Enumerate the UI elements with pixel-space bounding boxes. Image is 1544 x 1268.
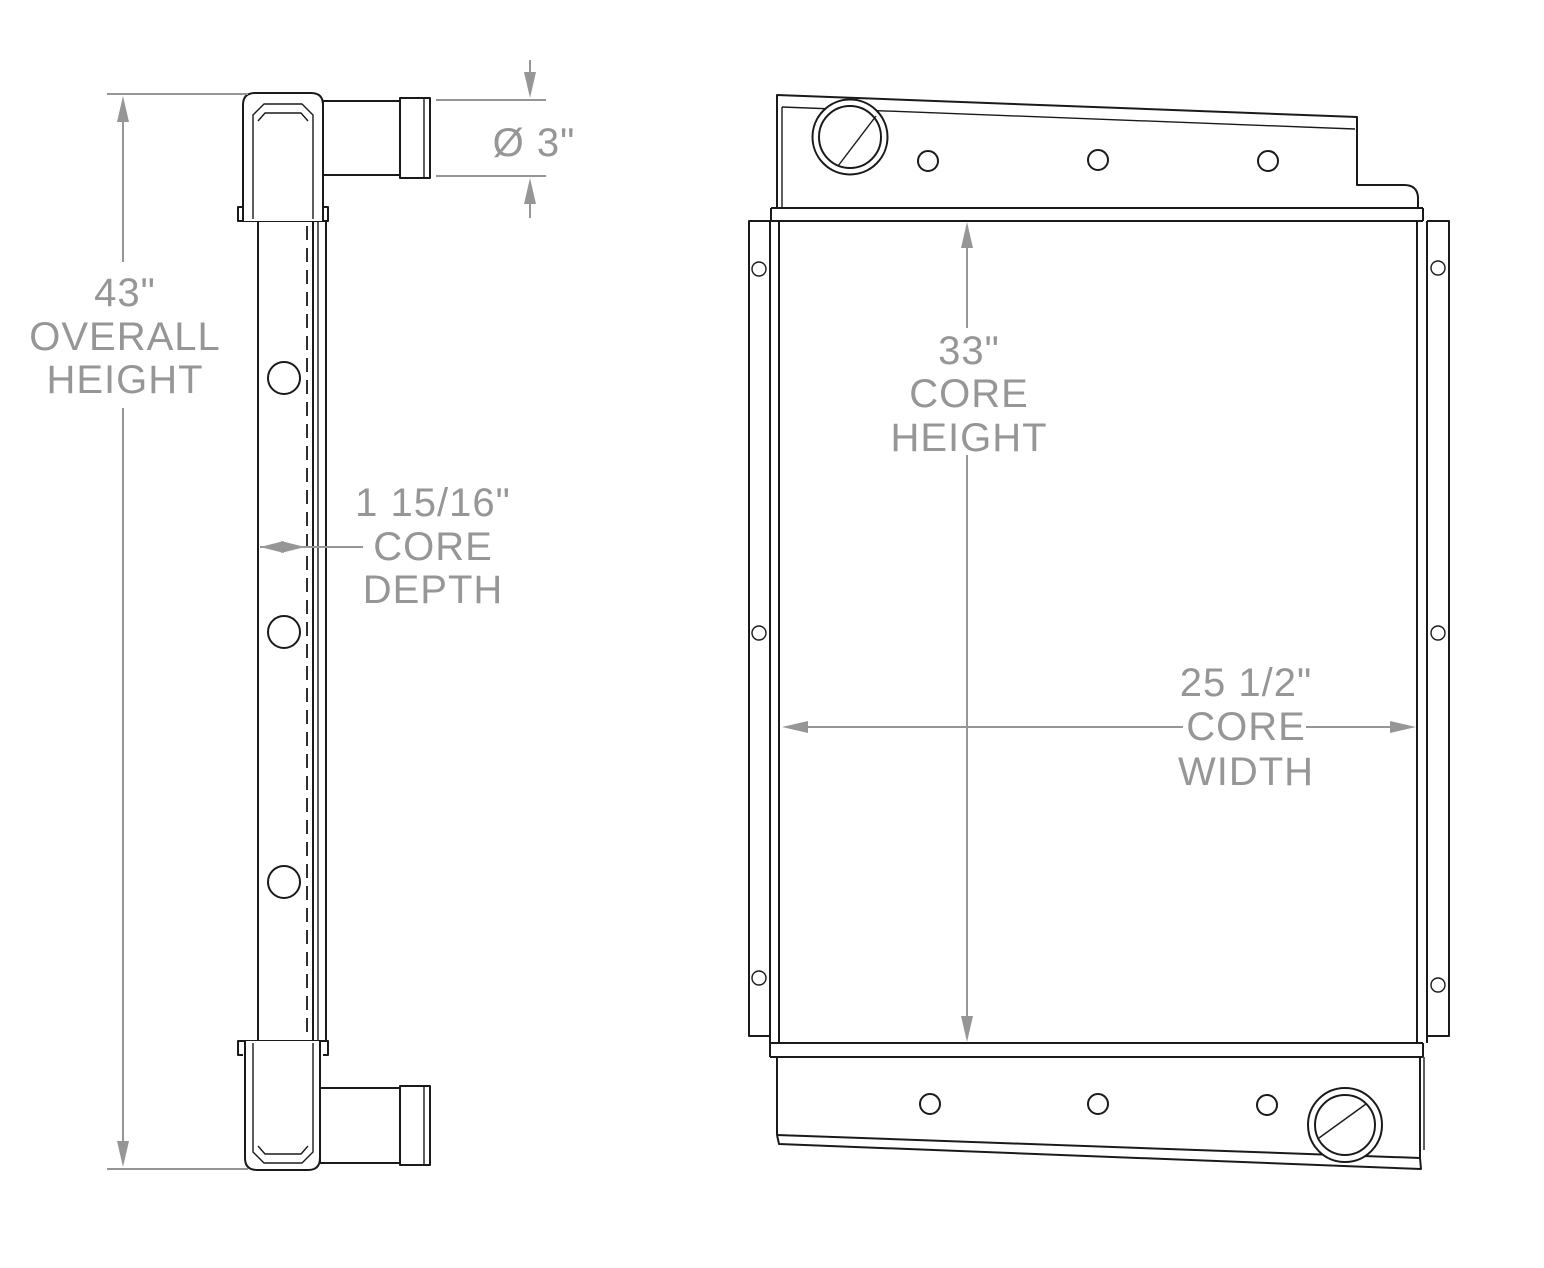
front-view (749, 95, 1449, 1169)
arrowhead-down (961, 1016, 973, 1042)
dimension-text: OVERALL (29, 315, 221, 359)
arrowhead-down (524, 72, 536, 98)
arrowhead-left (782, 721, 808, 733)
flange-bolt-hole (1431, 626, 1445, 640)
flange-bolt-hole (752, 262, 766, 276)
dimension-text: CORE (909, 372, 1029, 416)
dimension-text: 25 1/2" (1180, 661, 1312, 705)
tank-mounting-hole (920, 1094, 940, 1114)
drawing-canvas: 43" OVERALL HEIGHT Ø 3" 1 15/16" CORE DE… (0, 0, 1544, 1268)
side-bottom-outlet-pipe (320, 1086, 430, 1165)
side-mounting-hole (268, 362, 300, 394)
core-depth-dimension: 1 15/16" CORE DEPTH (260, 481, 511, 612)
arrowhead-down (117, 1141, 129, 1167)
flange-bolt-hole (752, 971, 766, 985)
core-height-dimension: 33" CORE HEIGHT (890, 222, 1047, 1042)
top-header-collar (771, 208, 1423, 221)
tank-mounting-hole (918, 151, 938, 171)
arrowhead-up (524, 178, 536, 204)
dimension-annotations: 43" OVERALL HEIGHT Ø 3" 1 15/16" CORE DE… (29, 60, 1416, 1169)
side-bottom-tank (238, 1041, 328, 1170)
front-bottom-tank (777, 1057, 1424, 1169)
dimension-text: HEIGHT (890, 416, 1047, 460)
flange-bolt-hole (1431, 261, 1445, 275)
dimension-text: 1 15/16" (355, 481, 511, 525)
side-top-outlet-pipe (323, 98, 430, 178)
left-channel-lines (770, 221, 779, 1043)
bottom-header-collar (770, 1043, 1423, 1057)
right-channel-lines (1417, 221, 1427, 1043)
core-width-dimension: 25 1/2" CORE WIDTH (782, 661, 1416, 794)
pipe-end-bead (400, 1086, 430, 1165)
side-mounting-hole (268, 616, 300, 648)
front-side-flanges (749, 221, 1449, 1036)
arrowhead-right (281, 541, 305, 553)
arrowhead-right (1390, 721, 1416, 733)
pipe-body (320, 1088, 400, 1163)
side-core-column (258, 221, 326, 1041)
pipe-end-bead (400, 98, 430, 178)
flange-bolt-hole (752, 626, 766, 640)
overall-height-dimension: 43" OVERALL HEIGHT (29, 94, 248, 1169)
front-top-tank (777, 95, 1418, 208)
side-top-tank (238, 93, 328, 221)
bottom-tank-outline (245, 1041, 320, 1170)
technical-drawing: 43" OVERALL HEIGHT Ø 3" 1 15/16" CORE DE… (0, 0, 1544, 1268)
pipe-diameter-dimension: Ø 3" (436, 60, 575, 218)
pipe-body (323, 101, 400, 175)
tank-mounting-hole (1088, 150, 1108, 170)
tank-mounting-hole (1257, 1095, 1277, 1115)
dimension-text: 43" (94, 271, 156, 315)
dimension-text: WIDTH (1178, 750, 1314, 794)
dimension-text: DEPTH (363, 568, 504, 612)
side-mounting-hole (268, 866, 300, 898)
dimension-text: Ø 3" (493, 121, 576, 165)
dimension-text: CORE (373, 525, 493, 569)
dimension-text: 33" (938, 329, 1000, 373)
dimension-text: HEIGHT (46, 358, 203, 402)
arrowhead-up (117, 96, 129, 122)
tank-mounting-hole (1088, 1094, 1108, 1114)
flange-bolt-hole (1431, 978, 1445, 992)
arrowhead-up (961, 222, 973, 248)
filler-neck-inner (819, 106, 881, 168)
front-core (770, 208, 1427, 1057)
dimension-text: CORE (1186, 705, 1306, 749)
tank-mounting-hole (1258, 151, 1278, 171)
side-view (238, 93, 430, 1170)
